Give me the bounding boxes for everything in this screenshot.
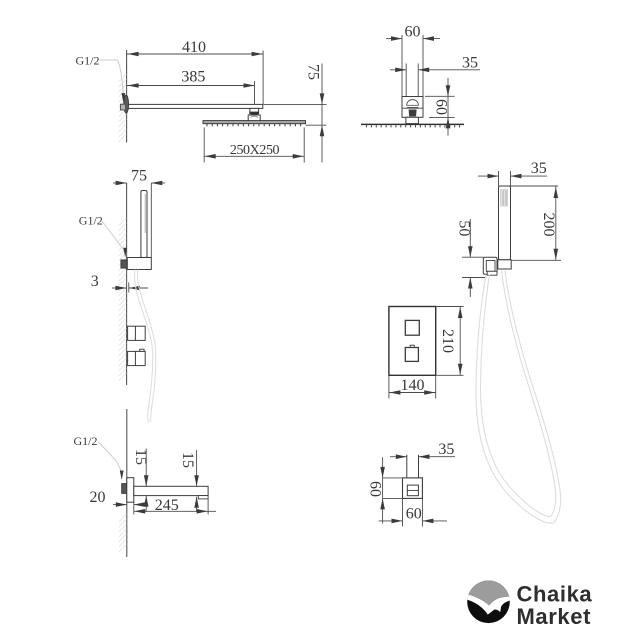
svg-text:15: 15 — [132, 449, 149, 465]
svg-text:140: 140 — [401, 377, 425, 394]
svg-text:Chaika: Chaika — [517, 582, 593, 607]
svg-text:35: 35 — [438, 441, 454, 458]
svg-text:60: 60 — [367, 481, 384, 497]
svg-text:3: 3 — [91, 273, 99, 290]
svg-text:20: 20 — [90, 489, 106, 506]
svg-text:Market: Market — [517, 604, 592, 629]
svg-text:250X250: 250X250 — [230, 143, 280, 158]
svg-text:50: 50 — [456, 220, 473, 236]
svg-text:35: 35 — [531, 160, 547, 177]
svg-text:60: 60 — [405, 24, 421, 41]
svg-text:35: 35 — [462, 54, 478, 71]
svg-text:15: 15 — [179, 452, 196, 468]
svg-text:60: 60 — [433, 99, 450, 115]
svg-text:75: 75 — [305, 64, 322, 80]
svg-text:G1/2: G1/2 — [79, 214, 103, 228]
svg-text:200: 200 — [540, 213, 557, 237]
svg-text:210: 210 — [439, 329, 456, 353]
svg-text:G1/2: G1/2 — [74, 434, 98, 448]
svg-text:385: 385 — [181, 68, 205, 85]
svg-text:75: 75 — [131, 168, 147, 185]
svg-text:245: 245 — [155, 497, 179, 514]
svg-text:G1/2: G1/2 — [76, 54, 100, 68]
svg-text:60: 60 — [406, 505, 422, 522]
svg-text:410: 410 — [182, 39, 206, 56]
